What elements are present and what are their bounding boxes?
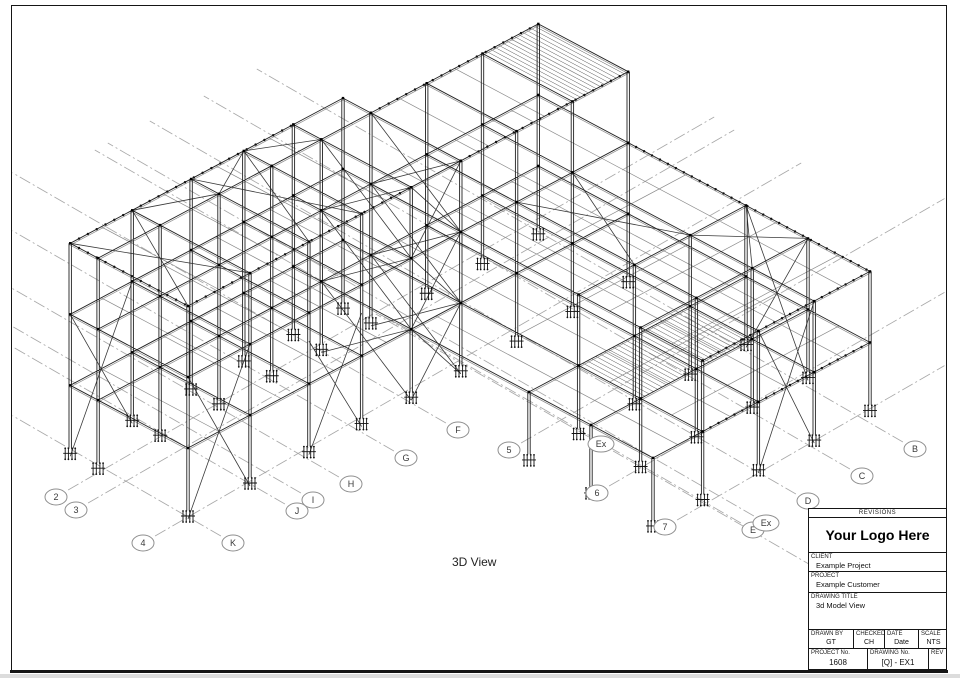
drawing-no-label: DRAWING No. xyxy=(868,649,928,657)
rev-value xyxy=(929,657,946,658)
client-label: CLIENT xyxy=(809,553,946,561)
scale-value: NTS xyxy=(919,638,946,646)
drawing-no-value: [Q] - EX1 xyxy=(868,657,928,667)
date-label: DATE xyxy=(885,630,918,638)
sheet-bottom-edge xyxy=(10,670,948,673)
signoff-row: DRAWN BY GT CHECKED BY CH DATE Date SCAL… xyxy=(809,630,946,649)
project-no-value: 1608 xyxy=(809,657,867,667)
drawn-by-value: GT xyxy=(809,638,853,646)
drawing-sheet: 234KJIHGF5Ex67EExDCB 3D View REVISIONS Y… xyxy=(0,0,960,678)
page-shadow xyxy=(0,674,960,678)
drawing-title-value: 3d Model View xyxy=(809,601,946,610)
sheet-border xyxy=(11,5,947,671)
drawing-no-cell: DRAWING No. [Q] - EX1 xyxy=(868,649,929,670)
drawing-title-box: DRAWING TITLE 3d Model View xyxy=(809,593,946,630)
scale-cell: SCALE NTS xyxy=(919,630,946,648)
scale-label: SCALE xyxy=(919,630,946,638)
title-block: REVISIONS Your Logo Here CLIENT Example … xyxy=(808,508,947,670)
date-value: Date xyxy=(885,638,918,646)
drawn-by-cell: DRAWN BY GT xyxy=(809,630,854,648)
logo-text: Your Logo Here xyxy=(809,518,946,553)
rev-cell: REV xyxy=(929,649,946,670)
drawn-by-label: DRAWN BY xyxy=(809,630,853,638)
project-value: Example Customer xyxy=(809,580,946,589)
checked-by-label: CHECKED BY xyxy=(854,630,884,638)
checked-by-cell: CHECKED BY CH xyxy=(854,630,885,648)
project-no-cell: PROJECT No. 1608 xyxy=(809,649,868,670)
project-label: PROJECT xyxy=(809,572,946,580)
numbers-row: PROJECT No. 1608 DRAWING No. [Q] - EX1 R… xyxy=(809,649,946,670)
revisions-header: REVISIONS xyxy=(809,509,946,518)
view-title: 3D View xyxy=(452,555,496,569)
rev-label: REV xyxy=(929,649,946,657)
date-cell: DATE Date xyxy=(885,630,919,648)
client-value: Example Project xyxy=(809,561,946,570)
client-box: CLIENT Example Project xyxy=(809,553,946,572)
project-no-label: PROJECT No. xyxy=(809,649,867,657)
checked-by-value: CH xyxy=(854,638,884,646)
drawing-title-label: DRAWING TITLE xyxy=(809,593,946,601)
project-box: PROJECT Example Customer xyxy=(809,572,946,593)
